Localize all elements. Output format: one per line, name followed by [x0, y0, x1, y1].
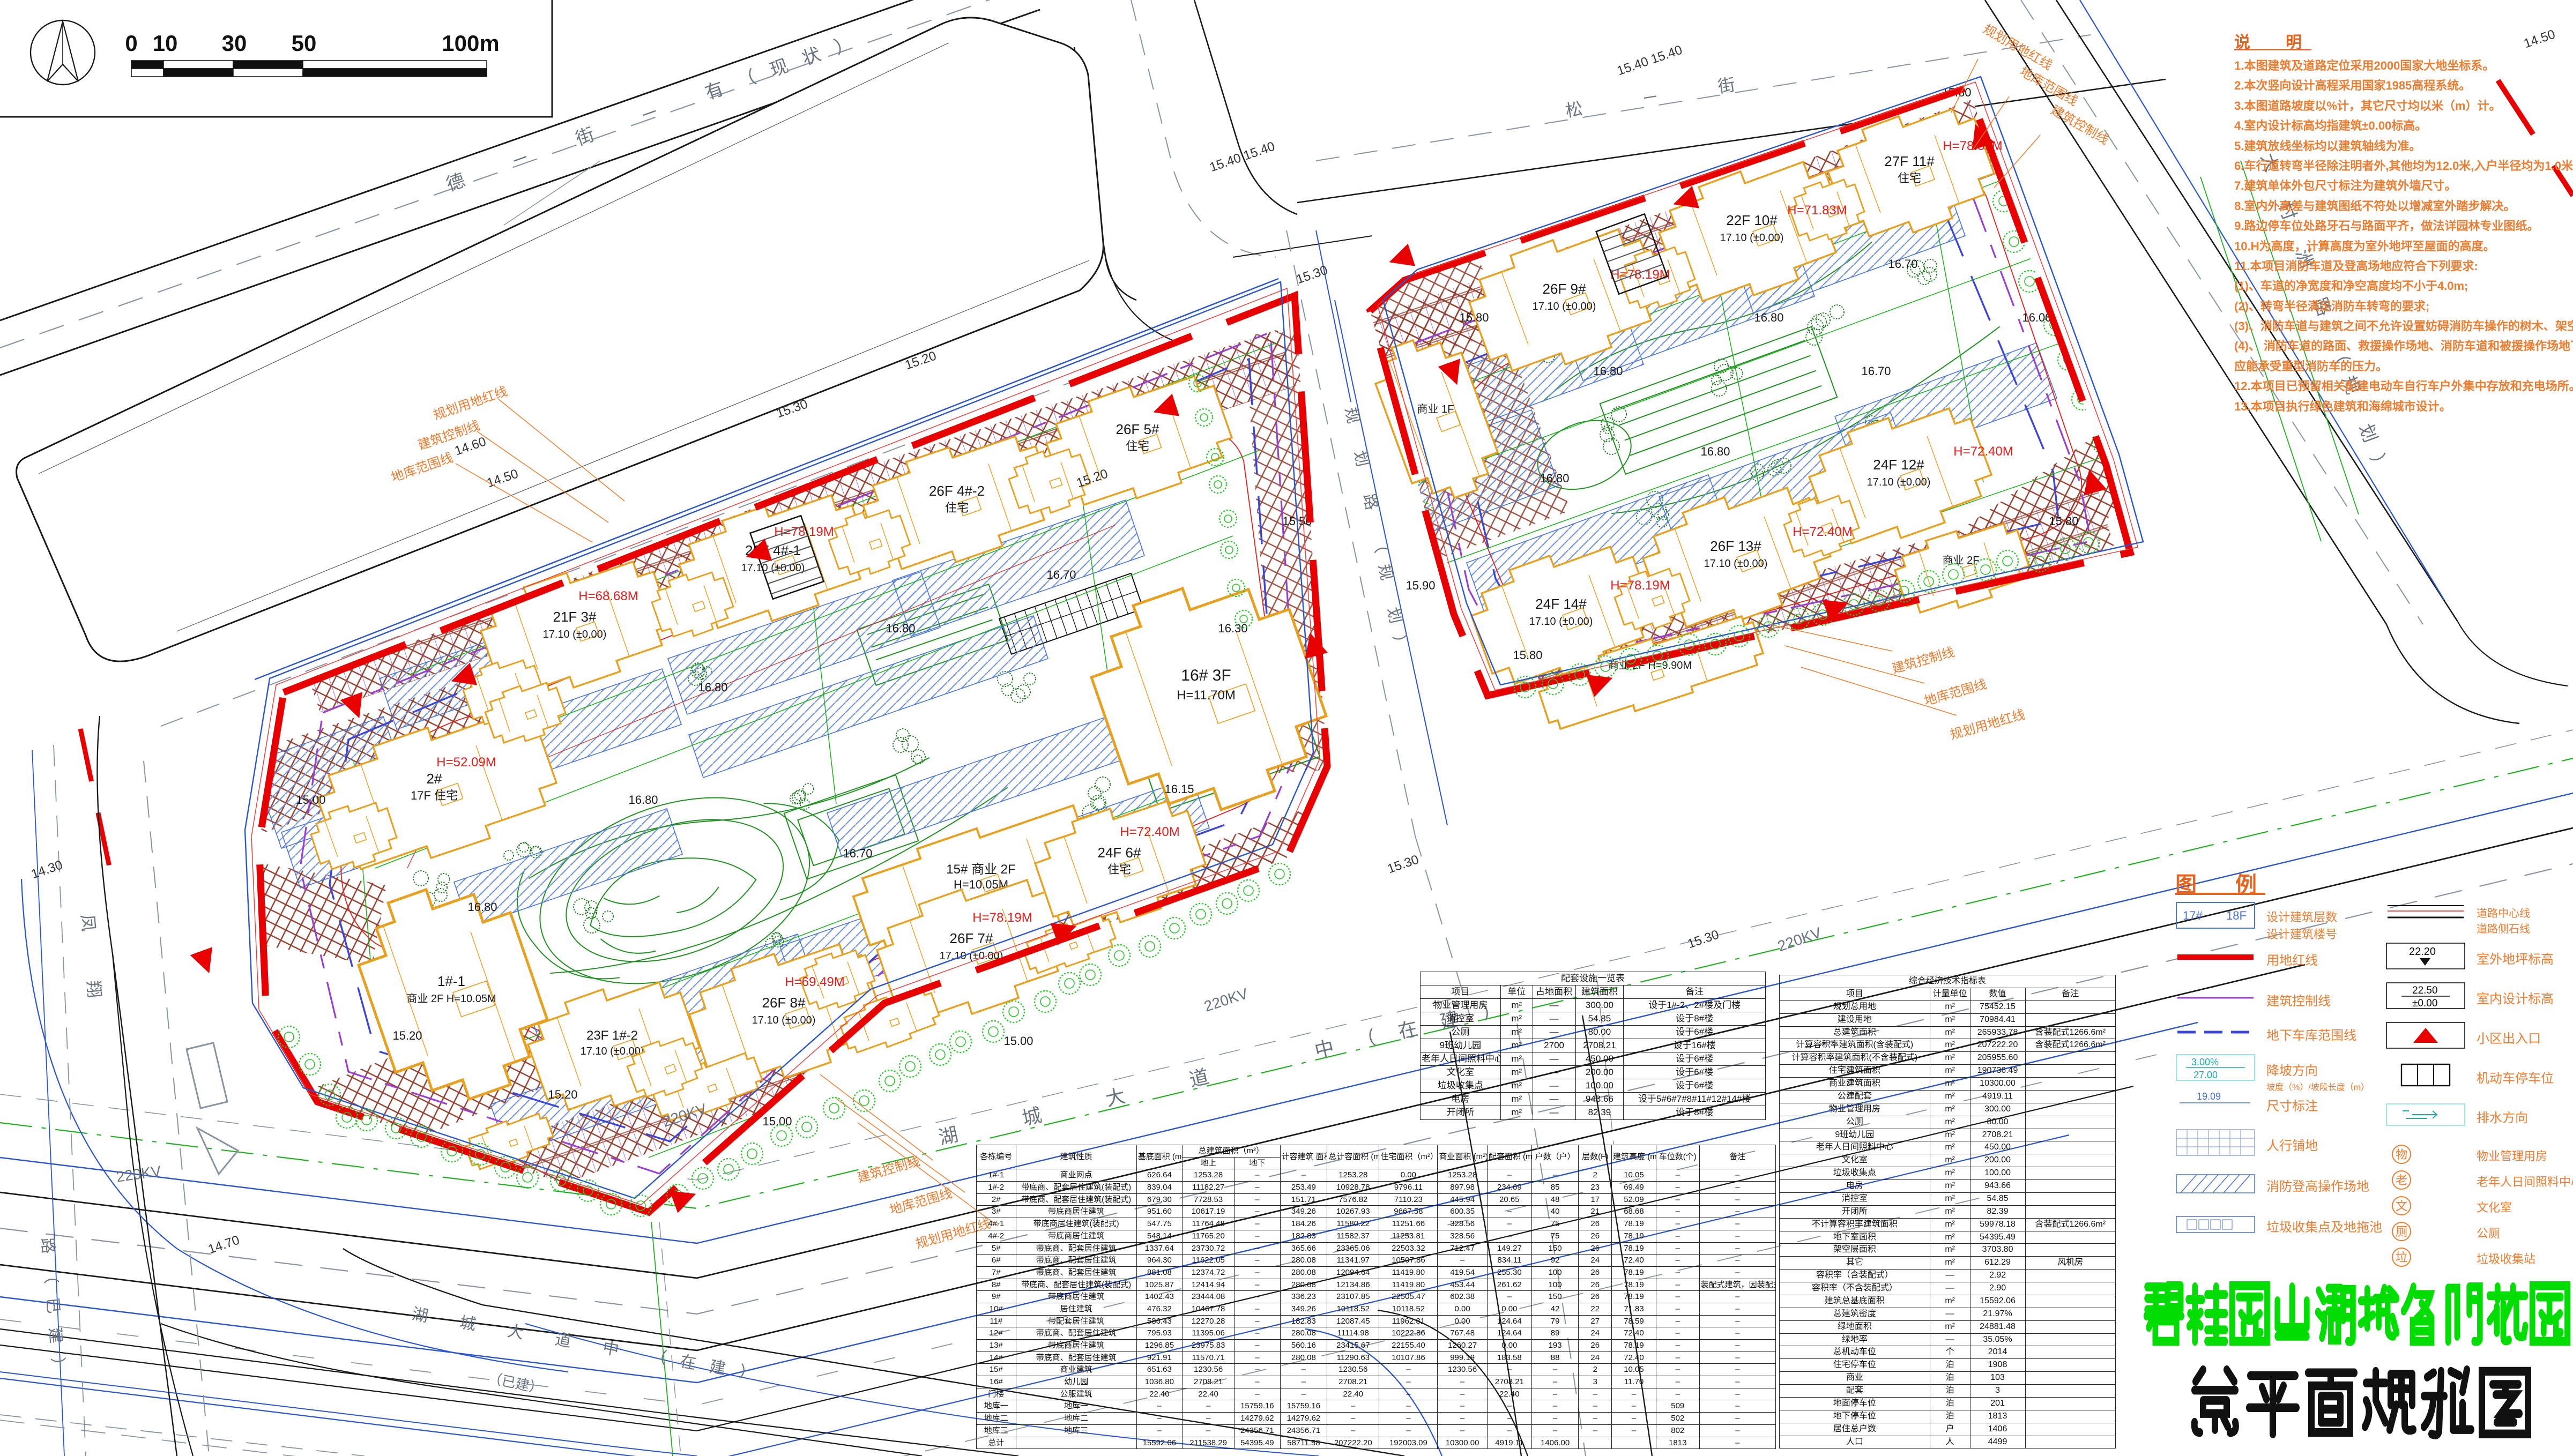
svg-text:3.00%: 3.00% — [2191, 1057, 2219, 1067]
svg-text:17.10 (±0.00): 17.10 (±0.00) — [1529, 616, 1593, 628]
svg-text:15.80: 15.80 — [1513, 648, 1542, 662]
svg-text:16.80: 16.80 — [1700, 445, 1730, 458]
svg-text:27.00: 27.00 — [2193, 1070, 2218, 1080]
svg-text:H=68.68M: H=68.68M — [578, 589, 638, 603]
svg-text:100m: 100m — [442, 31, 499, 56]
svg-text:15.90: 15.90 — [1406, 579, 1435, 592]
svg-text:17.10 (±0.00): 17.10 (±0.00) — [1720, 232, 1784, 244]
svg-text:文: 文 — [2396, 1199, 2407, 1213]
svg-text:H=52.09M: H=52.09M — [436, 755, 496, 770]
svg-text:15.80: 15.80 — [1459, 311, 1489, 324]
svg-text:住宅: 住宅 — [1107, 863, 1131, 876]
svg-text:16.80: 16.80 — [1593, 364, 1623, 378]
svg-text:物: 物 — [2396, 1148, 2407, 1161]
svg-text:15.00: 15.00 — [1003, 1034, 1033, 1048]
svg-text:16.70: 16.70 — [843, 847, 872, 860]
svg-text:15# 商业 2F: 15# 商业 2F — [946, 862, 1015, 877]
svg-text:商业 2F: 商业 2F — [1943, 554, 1980, 566]
svg-text:24F 14#: 24F 14# — [1535, 596, 1587, 612]
svg-text:H=69.49M: H=69.49M — [785, 975, 844, 989]
svg-text:15.20: 15.20 — [548, 1088, 577, 1101]
svg-text:16.70: 16.70 — [1046, 568, 1076, 581]
svg-text:16.15: 16.15 — [1164, 782, 1194, 796]
svg-text:15.80: 15.80 — [2049, 514, 2078, 528]
svg-text:24F 6#: 24F 6# — [1098, 845, 1141, 861]
svg-text:H=72.40M: H=72.40M — [1793, 525, 1852, 539]
svg-text:16# 3F: 16# 3F — [1181, 667, 1231, 684]
svg-text:17.10 (±0.00): 17.10 (±0.00) — [1867, 476, 1931, 488]
svg-text:2#: 2# — [427, 771, 442, 787]
svg-text:17.10 (±0.00): 17.10 (±0.00) — [741, 562, 805, 574]
svg-text:15.00: 15.00 — [296, 793, 325, 807]
svg-text:22F 10#: 22F 10# — [1726, 212, 1778, 228]
svg-text:16.80: 16.80 — [886, 622, 915, 635]
svg-text:17.10 (±0.00): 17.10 (±0.00) — [543, 629, 607, 640]
svg-text:16.80: 16.80 — [628, 793, 658, 807]
svg-text:26F 5#: 26F 5# — [1116, 421, 1159, 437]
svg-text:26F 13#: 26F 13# — [1710, 538, 1761, 554]
svg-text:H=72.40M: H=72.40M — [1120, 825, 1179, 839]
svg-text:17#: 17# — [2183, 909, 2203, 922]
svg-text:H=71.83M: H=71.83M — [1787, 203, 1847, 218]
svg-text:住宅: 住宅 — [1126, 439, 1149, 453]
svg-text:H=78.19M: H=78.19M — [972, 910, 1032, 925]
svg-text:16.80: 16.80 — [1754, 311, 1783, 324]
svg-text:21F 3#: 21F 3# — [553, 609, 597, 625]
svg-text:16.70: 16.70 — [1861, 364, 1891, 378]
svg-text:27F 11#: 27F 11# — [1884, 153, 1935, 169]
svg-text:15.20: 15.20 — [392, 1029, 422, 1042]
svg-text:H=78.19M: H=78.19M — [1610, 578, 1670, 593]
svg-text:厕: 厕 — [2396, 1225, 2407, 1238]
svg-text:26F 4#-2: 26F 4#-2 — [929, 483, 985, 499]
svg-text:26F 9#: 26F 9# — [1543, 281, 1586, 297]
svg-text:17F 住宅: 17F 住宅 — [411, 789, 458, 802]
svg-text:26F 8#: 26F 8# — [762, 995, 806, 1011]
svg-text:住宅: 住宅 — [945, 501, 969, 514]
svg-text:垃: 垃 — [2396, 1251, 2407, 1264]
svg-text:50: 50 — [292, 31, 317, 56]
svg-text:0: 0 — [125, 31, 137, 56]
svg-text:22.50: 22.50 — [2412, 985, 2438, 996]
svg-text:16.80: 16.80 — [698, 681, 727, 694]
svg-text:1#-1: 1#-1 — [437, 973, 465, 989]
svg-text:老: 老 — [2396, 1174, 2407, 1187]
svg-text:17.10 (±0.00): 17.10 (±0.00) — [940, 950, 1003, 962]
svg-text:H=11.70M: H=11.70M — [1177, 688, 1236, 703]
svg-text:17.10 (±0.00): 17.10 (±0.00) — [752, 1014, 816, 1026]
svg-text:18F: 18F — [2226, 909, 2247, 922]
svg-text:17.10 (±0.00): 17.10 (±0.00) — [1533, 301, 1596, 312]
svg-text:24F 12#: 24F 12# — [1873, 457, 1924, 473]
svg-text:商业 1F: 商业 1F — [1417, 403, 1454, 415]
svg-text:23F 1#-2: 23F 1#-2 — [586, 1028, 638, 1043]
svg-text:商业 2F H=10.05M: 商业 2F H=10.05M — [406, 992, 496, 1005]
svg-text:17.10 (±0.00): 17.10 (±0.00) — [1704, 558, 1768, 570]
svg-text:26F 7#: 26F 7# — [950, 930, 993, 946]
svg-text:16.30: 16.30 — [1218, 622, 1247, 635]
svg-text:16.70: 16.70 — [1888, 257, 1917, 271]
svg-text:30: 30 — [222, 31, 247, 56]
svg-text:住宅: 住宅 — [1898, 171, 1921, 185]
svg-text:22.20: 22.20 — [2409, 946, 2436, 958]
svg-text:H=72.40M: H=72.40M — [1953, 444, 2013, 459]
svg-text:±0.00: ±0.00 — [2412, 998, 2437, 1009]
svg-text:10: 10 — [153, 31, 178, 56]
svg-text:16.80: 16.80 — [467, 900, 497, 914]
svg-text:19.09: 19.09 — [2197, 1091, 2221, 1102]
svg-text:16.80: 16.80 — [1540, 472, 1569, 485]
